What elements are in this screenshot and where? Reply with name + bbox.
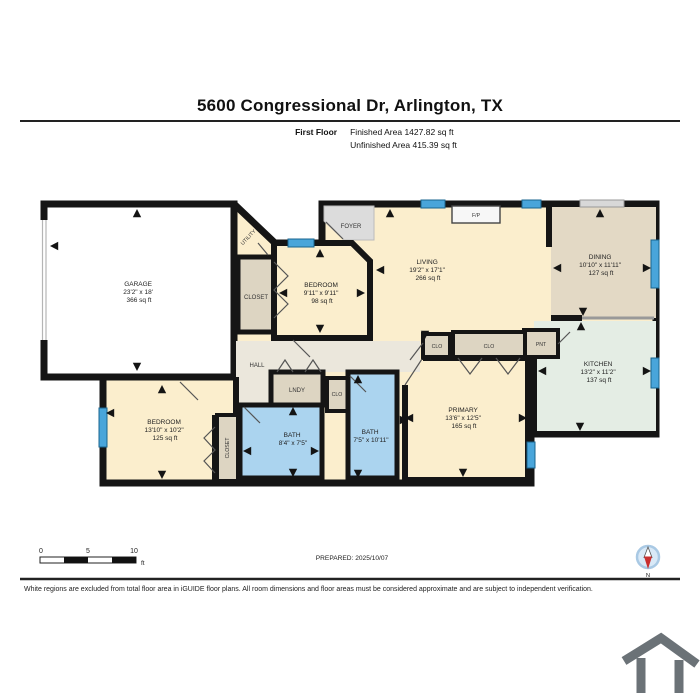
label-fireplace: F/P: [472, 213, 481, 219]
label-garage: GARAGE 23'2" x 18' 366 sq ft: [123, 281, 155, 304]
house-logo-icon: [624, 638, 697, 693]
label-clo-1: CLO: [432, 344, 443, 350]
patio-door: [580, 200, 624, 207]
compass-icon: N: [637, 546, 659, 579]
scale-tick-5: 5: [86, 548, 90, 555]
label-clo-small: CLO: [332, 392, 343, 398]
label-foyer: FOYER: [341, 224, 362, 230]
scale-tick-10: 10: [130, 548, 138, 555]
room-bath-2: [348, 372, 397, 478]
scale-unit: ft: [141, 560, 145, 567]
floor-plan-page: 5600 Congressional Dr, Arlington, TX Fir…: [0, 0, 700, 700]
disclaimer-text: White regions are excluded from total fl…: [24, 586, 593, 593]
label-laundry: LNDY: [289, 388, 305, 394]
label-clo-2: CLO: [484, 344, 495, 350]
prepared-date: PREPARED: 2025/10/07: [316, 555, 389, 562]
floor-plan-drawing: GARAGE 23'2" x 18' 366 sq ft BEDROOM 9'1…: [0, 0, 700, 700]
scale-bar: 0 5 10 ft: [39, 548, 145, 567]
label-pantry: PNT: [536, 342, 547, 348]
label-closet-vertical: CLOSET: [225, 437, 231, 459]
label-hall: HALL: [249, 363, 265, 369]
label-closet-top: CLOSET: [244, 295, 268, 301]
scale-tick-0: 0: [39, 548, 43, 555]
